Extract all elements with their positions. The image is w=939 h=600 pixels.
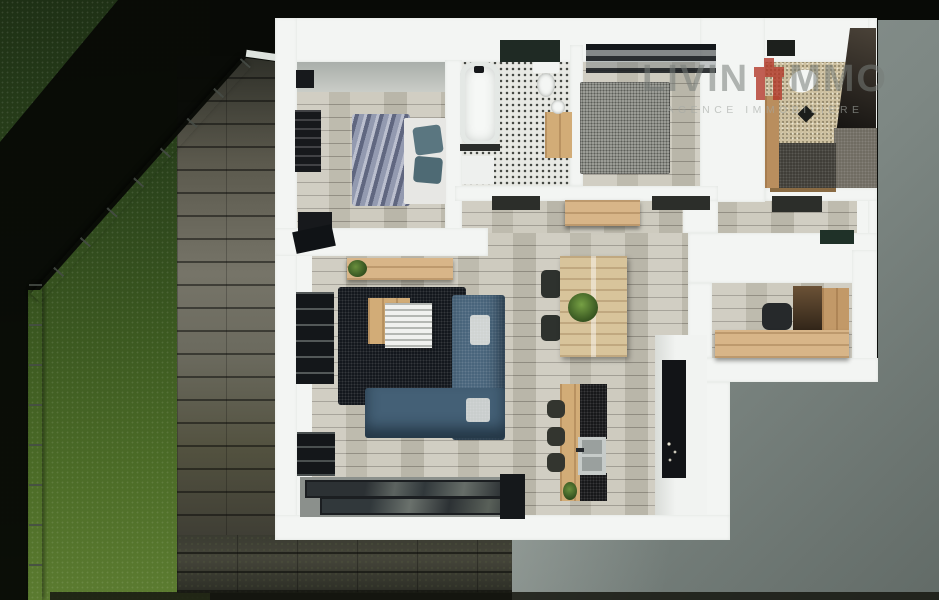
red-arch-monument-icon: [754, 58, 784, 100]
kitchen-stool-3: [547, 453, 565, 472]
kitchen-plant: [563, 482, 577, 500]
bedroom1-headwall-shade: [295, 62, 445, 96]
bathtub-faucet: [474, 66, 484, 73]
kitchen-stool-1: [547, 400, 565, 418]
toilet-tank: [533, 62, 559, 73]
kitchen-counter-dark-top: [580, 384, 607, 439]
walkin-ceiling-panel: [767, 40, 795, 56]
hall-mat-2: [652, 196, 710, 210]
bathtub: [460, 62, 500, 146]
sofa-cushion-2: [466, 398, 490, 422]
dining-chair-1: [541, 270, 561, 298]
walkin-dresser: [770, 143, 836, 192]
fireplace-lights: [665, 440, 683, 466]
hall-mat-1: [492, 196, 540, 210]
watermark: LIVIN MMO AGENCE IMMOBILIERE: [645, 58, 885, 116]
glass-railing-vertical: [29, 284, 42, 600]
wall-left: [275, 18, 297, 540]
office-desk-dark-panel: [793, 286, 822, 333]
sliding-door-glass-1: [305, 480, 504, 498]
bath-mat: [462, 156, 494, 184]
coffee-table-tray: [385, 303, 432, 348]
dining-chair-2: [541, 315, 561, 341]
sliding-door-post: [500, 474, 525, 519]
sofa-cushion-1: [470, 315, 490, 345]
walkin-wardrobe-face: [834, 128, 877, 188]
floorplan-render: LIVIN MMO AGENCE IMMOBILIERE: [0, 0, 939, 600]
dining-plant: [568, 293, 598, 322]
office-desk-slab: [715, 330, 849, 358]
bed1-duvet: [352, 114, 410, 206]
console-plant: [348, 260, 367, 277]
bedroom1-corner-item: [296, 70, 314, 88]
watermark-brand-right: MMO: [789, 60, 888, 98]
kitchen-counter-dark-bottom: [580, 473, 607, 501]
hall-mat-3: [772, 196, 822, 212]
watermark-brand-row: LIVIN MMO: [642, 58, 888, 100]
bedroom1-radiator: [295, 110, 321, 172]
watermark-tagline: AGENCE IMMOBILIERE: [666, 104, 863, 116]
window-unit-1: [296, 292, 334, 384]
deck-terrace-bottom: [177, 535, 512, 593]
vanity-basin: [551, 100, 565, 114]
bath-vanity: [545, 112, 572, 158]
tub-deck-strip: [460, 144, 500, 151]
hall-sideboard: [565, 200, 640, 226]
kitchen-faucet: [576, 448, 584, 452]
bath-wall-cabinet: [500, 40, 560, 62]
wall-office-bottom: [688, 358, 878, 382]
bed1-pillow-1: [412, 124, 444, 156]
office-wall-object: [820, 230, 854, 244]
watermark-brand-left: LIVIN: [642, 60, 749, 98]
office-chair: [762, 303, 792, 330]
window-unit-2: [297, 432, 335, 476]
sliding-door-glass-2: [320, 497, 519, 515]
kitchen-sink: [578, 437, 606, 475]
bed1-pillow-2: [413, 156, 443, 184]
office-desk-side: [822, 288, 849, 332]
ground-edge-line: [50, 592, 939, 600]
kitchen-stool-2: [547, 427, 565, 446]
